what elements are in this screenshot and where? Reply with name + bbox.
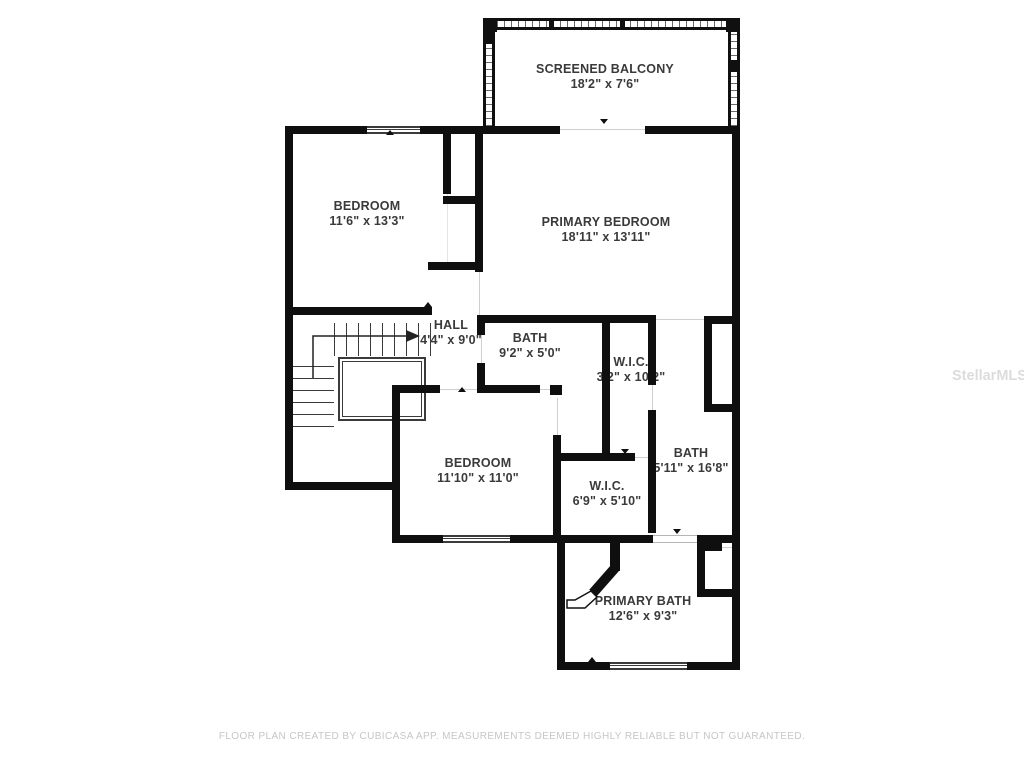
room-label-screened-balcony: SCREENED BALCONY 18'2" x 7'6"	[536, 62, 674, 92]
wall	[697, 589, 740, 597]
room-label-bath-1: BATH 9'2" x 5'0"	[499, 331, 561, 361]
room-name: SCREENED BALCONY	[536, 62, 674, 77]
window-symbol	[610, 662, 687, 670]
wall	[697, 543, 722, 551]
fixtures-overlay	[0, 0, 1024, 768]
door-threshold	[635, 457, 648, 458]
room-label-bedroom-2: BEDROOM 11'10" x 11'0"	[437, 456, 519, 486]
room-dims: 12'6" x 9'3"	[595, 609, 692, 624]
wall	[443, 134, 451, 194]
balcony-rail-right	[728, 30, 740, 126]
angled-wall	[593, 568, 615, 593]
room-dims: 6'9" x 5'10"	[573, 494, 642, 509]
wall	[553, 435, 561, 537]
door-threshold	[722, 547, 732, 548]
room-label-hall: HALL 4'4" x 9'0"	[420, 318, 482, 348]
door-threshold	[479, 272, 480, 315]
wall	[285, 482, 400, 490]
room-label-wic-2: W.I.C. 6'9" x 5'10"	[573, 479, 642, 509]
bath-fixture-icon	[567, 591, 597, 608]
door-threshold	[652, 385, 653, 410]
wall	[477, 385, 540, 393]
room-dims: 18'2" x 7'6"	[536, 77, 674, 92]
door-threshold	[656, 319, 704, 320]
opening-marker	[621, 449, 629, 454]
balcony-post	[483, 18, 497, 32]
wall	[648, 410, 656, 533]
wall	[477, 315, 656, 323]
wall	[475, 134, 483, 272]
wall	[557, 535, 565, 670]
staircase-lower-flight	[293, 357, 334, 427]
wall	[645, 126, 740, 134]
room-name: PRIMARY BEDROOM	[542, 215, 671, 230]
room-name: HALL	[420, 318, 482, 333]
room-dims: 11'6" x 13'3"	[329, 214, 404, 229]
balcony-rail-top	[483, 18, 740, 30]
opening-marker	[564, 538, 572, 543]
staircase-upper-flight	[334, 323, 432, 356]
room-label-primary-bath: PRIMARY BATH 12'6" x 9'3"	[595, 594, 692, 624]
wall	[443, 196, 478, 204]
wall	[510, 535, 653, 543]
wall	[285, 126, 367, 134]
wall	[392, 535, 443, 543]
wall	[285, 307, 432, 315]
room-name: BATH	[653, 446, 728, 461]
opening-marker	[600, 119, 608, 124]
room-label-bedroom-1: BEDROOM 11'6" x 13'3"	[329, 199, 404, 229]
balcony-post	[483, 32, 495, 44]
wall	[420, 126, 560, 134]
opening-marker	[673, 529, 681, 534]
room-dims: 9'2" x 5'0"	[499, 346, 561, 361]
watermark: StellarMLS	[952, 368, 1024, 384]
room-dims: 18'11" x 13'11"	[542, 230, 671, 245]
opening-marker	[458, 387, 466, 392]
wall	[610, 543, 620, 571]
wall	[704, 404, 740, 412]
wall	[477, 323, 485, 335]
door-threshold	[557, 398, 558, 435]
wall	[395, 385, 440, 393]
room-name: BEDROOM	[329, 199, 404, 214]
balcony-post	[728, 60, 740, 72]
room-name: BATH	[499, 331, 561, 346]
wall	[648, 315, 656, 385]
room-dims: 5'11" x 16'8"	[653, 461, 728, 476]
cased-opening	[653, 535, 697, 543]
room-name: W.I.C.	[573, 479, 642, 494]
balcony-post	[726, 18, 740, 32]
floor-plan-page: SCREENED BALCONY 18'2" x 7'6" BEDROOM 11…	[0, 0, 1024, 768]
room-name: PRIMARY BATH	[595, 594, 692, 609]
wall	[428, 262, 482, 270]
room-label-primary-bedroom: PRIMARY BEDROOM 18'11" x 13'11"	[542, 215, 671, 245]
wall	[392, 385, 400, 543]
room-dims: 11'10" x 11'0"	[437, 471, 519, 486]
wall	[557, 453, 635, 461]
opening-marker	[386, 130, 394, 135]
footer-disclaimer: FLOOR PLAN CREATED BY CUBICASA APP. MEAS…	[0, 731, 1024, 742]
wall	[557, 662, 610, 670]
room-name: BEDROOM	[437, 456, 519, 471]
balcony-rail-left	[483, 30, 495, 126]
opening-marker	[424, 302, 432, 307]
wall	[704, 316, 712, 412]
room-label-bath-2: BATH 5'11" x 16'8"	[653, 446, 728, 476]
wall	[550, 385, 562, 395]
opening-marker	[588, 657, 596, 662]
balcony-post	[620, 18, 625, 30]
balcony-post	[549, 18, 554, 30]
window-symbol	[443, 535, 510, 543]
room-dims: 4'4" x 9'0"	[420, 333, 482, 348]
wall	[602, 315, 610, 460]
door-threshold	[560, 129, 645, 130]
